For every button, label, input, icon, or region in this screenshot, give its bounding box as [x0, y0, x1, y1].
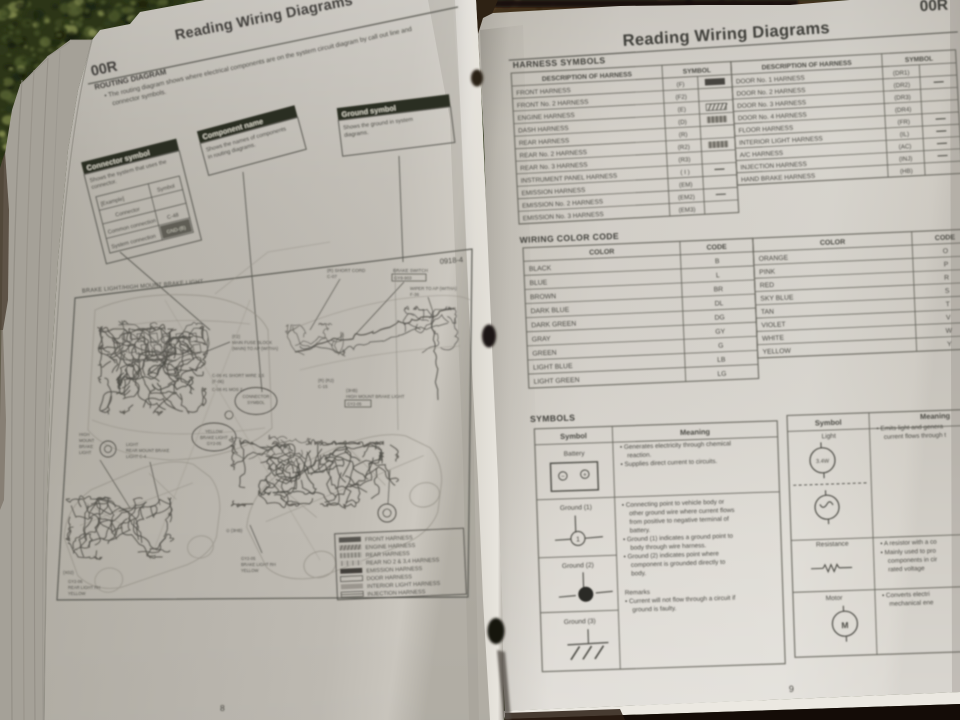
- svg-text:3.4W: 3.4W: [816, 459, 830, 465]
- svg-text:Ground (2): Ground (2): [562, 562, 594, 570]
- svg-text:(EM): (EM): [679, 181, 693, 189]
- svg-text:LIGHT: LIGHT: [79, 450, 92, 455]
- svg-text:(R3): (R3): [678, 156, 690, 164]
- svg-text:CODE: CODE: [706, 244, 727, 252]
- svg-text:O: O: [943, 248, 949, 255]
- svg-text:PINK: PINK: [759, 269, 776, 277]
- svg-text:G: G: [718, 343, 724, 350]
- svg-text:TAN: TAN: [761, 309, 774, 317]
- svg-text:RED: RED: [760, 282, 775, 290]
- svg-text:HIGH MOUNT BRAKE LIGHT: HIGH MOUNT BRAKE LIGHT: [346, 394, 405, 399]
- svg-text:ground is faulty.: ground is faulty.: [632, 605, 676, 613]
- svg-text:(R) SHORT CORD: (R) SHORT CORD: [327, 268, 366, 273]
- svg-text:SYMBOLS: SYMBOLS: [530, 413, 576, 424]
- svg-text:B: B: [715, 258, 720, 265]
- svg-text:S: S: [945, 288, 950, 295]
- svg-text:(HB): (HB): [900, 168, 913, 176]
- svg-text:−: −: [561, 473, 565, 480]
- svg-text:BRAKE: BRAKE: [79, 444, 93, 449]
- svg-text:GY2-05: GY2-05: [241, 556, 256, 561]
- svg-text:(D): (D): [678, 119, 687, 126]
- svg-text:REAR MOUNT BRAKE: REAR MOUNT BRAKE: [126, 448, 170, 453]
- svg-text:CONNECTOR: CONNECTOR: [243, 394, 270, 399]
- svg-text:( I ): ( I ): [680, 169, 690, 176]
- svg-text:V: V: [946, 314, 951, 321]
- svg-text:HIGH: HIGH: [79, 432, 89, 437]
- svg-text:ORANGE: ORANGE: [759, 255, 789, 263]
- svg-text:COLOR: COLOR: [820, 239, 846, 247]
- svg-text:00R: 00R: [919, 0, 948, 15]
- svg-text:WHITE: WHITE: [762, 335, 785, 343]
- svg-text:BRAKE LIGHT: BRAKE LIGHT: [200, 435, 228, 440]
- svg-text:reaction.: reaction.: [627, 452, 652, 460]
- svg-text:(FR): (FR): [897, 119, 910, 127]
- svg-text:LIGHT C-4: LIGHT C-4: [126, 454, 147, 459]
- svg-text:Light: Light: [821, 433, 836, 440]
- svg-text:(IL): (IL): [900, 131, 910, 138]
- svg-text:Ground (1): Ground (1): [560, 504, 592, 512]
- svg-text:(DR2): (DR2): [893, 82, 910, 90]
- svg-text:GRAY: GRAY: [532, 336, 552, 344]
- svg-text:rated voltage: rated voltage: [888, 565, 925, 573]
- svg-text:9: 9: [789, 684, 794, 694]
- svg-text:⊙ (3HB): ⊙ (3HB): [226, 528, 243, 533]
- svg-text:C-07: C-07: [327, 274, 337, 279]
- svg-text:(F): (F): [676, 81, 684, 88]
- svg-text:MOUNT: MOUNT: [79, 438, 95, 443]
- svg-text:body.: body.: [631, 570, 646, 577]
- svg-text:(EM2): (EM2): [678, 194, 695, 202]
- svg-text:W: W: [946, 328, 953, 335]
- svg-text:(DR1): (DR1): [893, 69, 910, 77]
- svg-text:(R) (R2): (R) (R2): [318, 378, 334, 383]
- svg-text:+: +: [583, 472, 587, 479]
- svg-text:BLUE: BLUE: [529, 279, 547, 287]
- svg-text:GREEN: GREEN: [532, 350, 557, 358]
- svg-text:BRAKE SWITCH: BRAKE SWITCH: [393, 268, 428, 273]
- svg-text:SYMBOL: SYMBOL: [247, 400, 265, 405]
- svg-text:T: T: [946, 301, 950, 308]
- svg-text:battery.: battery.: [630, 527, 651, 535]
- svg-text:GY2-05: GY2-05: [207, 441, 222, 446]
- svg-text:M: M: [841, 620, 848, 630]
- svg-text:GY2-05: GY2-05: [347, 402, 362, 407]
- svg-text:VIOLET: VIOLET: [761, 321, 785, 329]
- svg-text:DL: DL: [715, 300, 724, 307]
- svg-text:C-06 #1 SHORT WIRE 1.5: C-06 #1 SHORT WIRE 1.5: [212, 373, 265, 378]
- svg-text:C-15: C-15: [318, 384, 328, 389]
- svg-text:(R): (R): [679, 131, 688, 138]
- svg-text:BROWN: BROWN: [530, 293, 556, 301]
- svg-text:C-06 #1 MOS 2: C-06 #1 MOS 2: [212, 387, 243, 392]
- svg-text:BLACK: BLACK: [529, 265, 552, 273]
- svg-text:Y: Y: [947, 341, 952, 348]
- svg-text:(DR4): (DR4): [895, 106, 912, 114]
- svg-text:YELLOW: YELLOW: [205, 429, 223, 434]
- svg-text:YELLOW: YELLOW: [241, 568, 259, 573]
- svg-text:MAIN FUSE BLOCK: MAIN FUSE BLOCK: [232, 340, 272, 345]
- svg-text:(EM3): (EM3): [678, 206, 695, 214]
- svg-text:SYMBOL: SYMBOL: [683, 67, 712, 75]
- svg-text:Meaning: Meaning: [680, 427, 711, 437]
- svg-text:Remarks: Remarks: [625, 589, 650, 597]
- svg-text:LG: LG: [717, 371, 726, 378]
- svg-text:YELLOW: YELLOW: [68, 591, 86, 596]
- svg-text:SYMBOL: SYMBOL: [905, 56, 934, 64]
- svg-text:8: 8: [220, 703, 225, 713]
- svg-text:(DR3): (DR3): [894, 94, 911, 102]
- svg-text:(AC): (AC): [899, 143, 912, 151]
- svg-text:BR: BR: [714, 286, 724, 293]
- svg-text:CODE: CODE: [935, 234, 956, 242]
- svg-text:(R2): (R2): [678, 144, 690, 152]
- svg-text:(X02): (X02): [63, 570, 74, 575]
- svg-text:COLOR: COLOR: [589, 249, 615, 257]
- svg-text:Meaning: Meaning: [920, 411, 951, 421]
- svg-text:F-36: F-36: [410, 292, 420, 297]
- svg-text:Symbol: Symbol: [815, 418, 842, 428]
- svg-text:Ground (3): Ground (3): [564, 618, 596, 626]
- svg-text:Motor: Motor: [826, 595, 844, 603]
- svg-text:WIPER TO AP (WITHA): WIPER TO AP (WITHA): [410, 286, 457, 291]
- svg-text:Battery: Battery: [564, 450, 586, 458]
- svg-text:LB: LB: [717, 357, 726, 364]
- svg-text:(MAIN) TO AP (WITHA): (MAIN) TO AP (WITHA): [232, 346, 279, 351]
- svg-text:DG: DG: [714, 314, 724, 321]
- svg-text:mechanical ene: mechanical ene: [889, 599, 934, 607]
- svg-text:R: R: [944, 275, 949, 282]
- svg-text:LIGHT: LIGHT: [126, 442, 139, 447]
- svg-text:(E): (E): [678, 106, 687, 113]
- svg-text:Symbol: Symbol: [560, 431, 587, 441]
- svg-text:1: 1: [576, 536, 580, 543]
- svg-text:YELLOW: YELLOW: [762, 348, 791, 356]
- svg-text:BRAKE LIGHT RH: BRAKE LIGHT RH: [241, 562, 276, 567]
- svg-text:GY8-903: GY8-903: [394, 276, 412, 281]
- svg-text:(INJ): (INJ): [899, 155, 913, 163]
- svg-text:(3HB): (3HB): [346, 388, 358, 393]
- svg-text:L: L: [716, 272, 720, 279]
- svg-text:GY2-06: GY2-06: [68, 579, 83, 584]
- svg-text:REAR LIGHT RH: REAR LIGHT RH: [68, 585, 100, 590]
- svg-text:P: P: [944, 261, 949, 268]
- svg-text:Resistance: Resistance: [816, 540, 849, 548]
- svg-text:GY: GY: [715, 328, 726, 335]
- svg-text:SKY BLUE: SKY BLUE: [760, 294, 794, 302]
- svg-text:(F2): (F2): [675, 94, 687, 102]
